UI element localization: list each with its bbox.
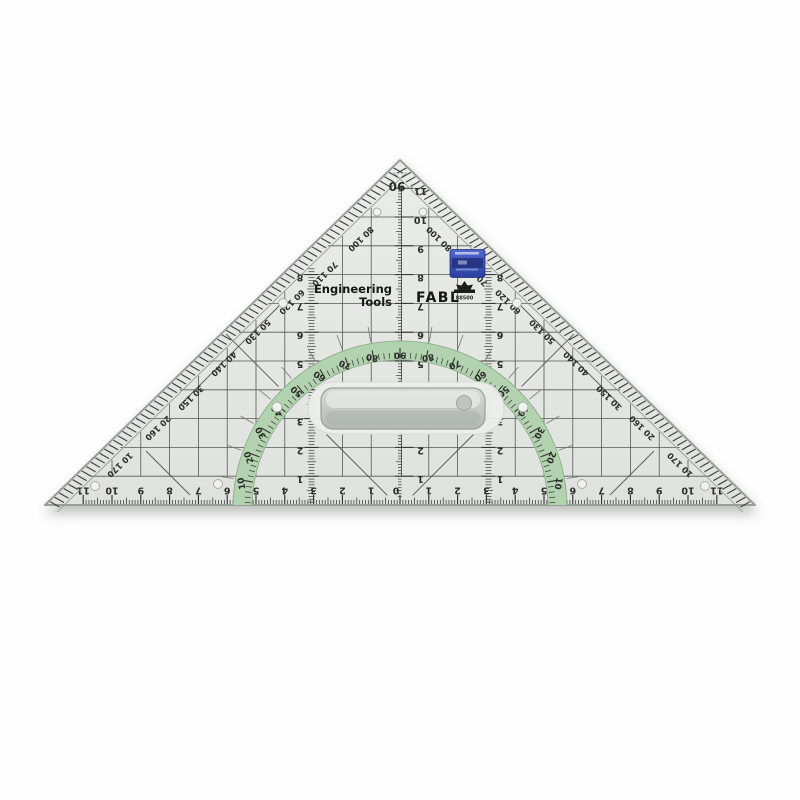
bottom-cm-label: 1 [425, 485, 432, 496]
brand-line2: Tools [359, 295, 392, 309]
alignment-hole [214, 480, 223, 489]
side-cm-label: 1 [297, 473, 304, 484]
photo-stage: 1110987654321012345678910111234567891011… [0, 0, 800, 800]
alignment-hole [279, 299, 288, 308]
bottom-cm-label: 9 [656, 485, 663, 496]
sticker-glint-top [455, 252, 479, 255]
apex-angle-label: 90 [389, 179, 406, 193]
bottom-cm-label: 9 [137, 485, 144, 496]
sticker-glint-bottom [456, 269, 478, 271]
side-cm-label: 5 [497, 358, 504, 369]
side-cm-label: 6 [496, 329, 503, 340]
sticker-band [452, 258, 483, 268]
grip-shade [326, 411, 480, 425]
bottom-cm-label: 8 [627, 485, 634, 496]
bottom-cm-label: 0 [392, 485, 399, 496]
side-cm-label: 2 [297, 444, 304, 455]
alignment-hole [419, 208, 427, 216]
alignment-hole [513, 299, 522, 308]
alignment-hole [91, 482, 100, 491]
degree-label: 10 [552, 477, 564, 491]
bottom-cm-label: 2 [339, 485, 346, 496]
bottom-cm-label: 7 [195, 485, 202, 496]
blue-label-sticker [450, 250, 485, 278]
side-cm-label: 1 [497, 473, 504, 484]
degree-label: 10 [236, 477, 248, 491]
bottom-cm-label: 3 [310, 485, 317, 496]
set-square-body: 1110987654321012345678910111234567891011… [45, 160, 755, 512]
bottom-cm-label: 1 [368, 485, 375, 496]
alignment-hole [518, 402, 528, 412]
side-cm-label: 2 [497, 444, 504, 455]
model-number: 88500 [456, 296, 474, 302]
alignment-hole [373, 208, 381, 216]
side-cm-label: 5 [297, 358, 304, 369]
bottom-cm-label: 3 [483, 485, 490, 496]
set-square-photo: 1110987654321012345678910111234567891011… [0, 0, 800, 800]
apex-marking: 90 [389, 179, 406, 193]
bottom-cm-label: 6 [224, 485, 231, 496]
finger-grip [308, 382, 504, 434]
centre-cm-label: 2 [417, 444, 424, 455]
bottom-cm-label: 4 [281, 485, 288, 496]
centre-cm-label: 1 [417, 473, 424, 484]
bottom-cm-label: 10 [681, 485, 695, 496]
bottom-cm-label: 7 [598, 485, 605, 496]
brand-line1: Engineering [314, 282, 392, 296]
alignment-hole [701, 482, 710, 491]
bottom-cm-label: 10 [105, 485, 119, 496]
degree-label: 80 [421, 351, 435, 363]
maker-name: FABL [416, 290, 460, 306]
centre-cm-label: 9 [417, 243, 424, 254]
sticker-glint-mid [458, 261, 467, 265]
alignment-hole [272, 402, 282, 412]
bottom-cm-label: 2 [454, 485, 461, 496]
bottom-cm-label: 6 [569, 485, 576, 496]
side-cm-label: 3 [297, 416, 304, 427]
alignment-hole [578, 480, 587, 489]
degree-label: 80 [365, 351, 379, 363]
centre-cm-label: 6 [417, 329, 424, 340]
grip-dimple [457, 396, 472, 411]
degree-label: 90 [394, 350, 406, 360]
centre-cm-label: 8 [417, 272, 424, 283]
bottom-cm-label: 8 [166, 485, 173, 496]
side-cm-label: 6 [296, 329, 303, 340]
bottom-cm-label: 4 [512, 485, 519, 496]
